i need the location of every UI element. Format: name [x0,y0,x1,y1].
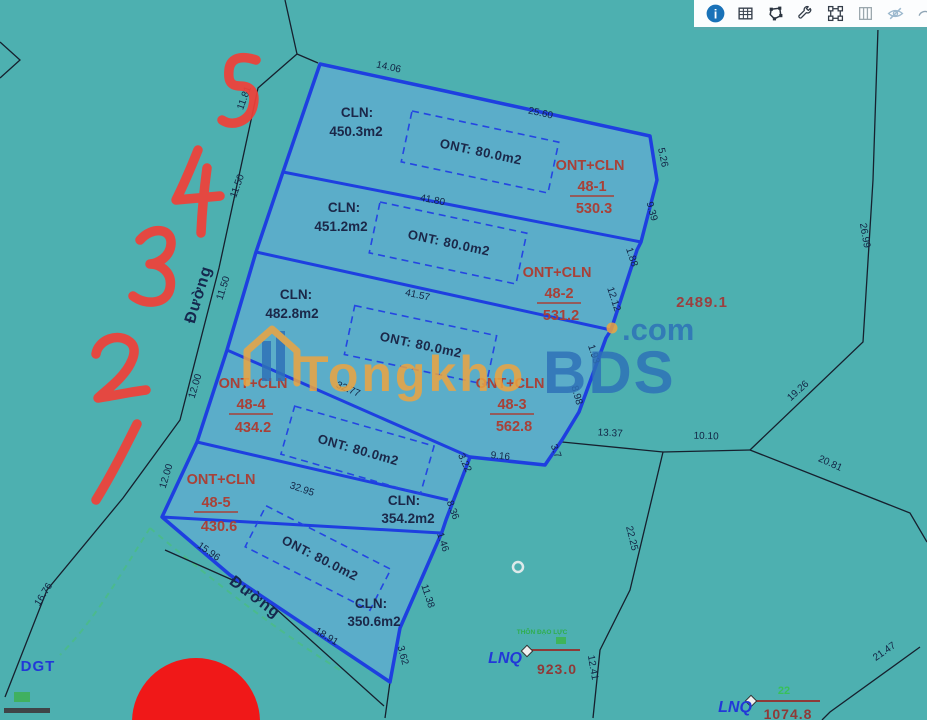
info-button[interactable]: i [700,1,730,27]
parcel5-type: ONT+CLN [187,472,256,488]
svg-text:i: i [713,6,717,21]
polygon-select-icon [767,5,784,22]
parcel5-code: 48-5 [201,495,230,511]
lnq-1-value: 923.0 [537,661,577,677]
parcel5-total: 430.6 [201,519,237,535]
transform-icon [827,5,844,22]
dim-13-37: 13.37 [597,427,623,439]
green-area-symbol [14,692,30,702]
parcel2-cln-area: 451.2m2 [314,219,367,234]
parcel3-cln-area: 482.8m2 [265,306,318,321]
map-toolbar: i [694,0,927,30]
wrench-button[interactable] [790,1,820,27]
lnq-2-value: 1074.8 [764,706,813,720]
table-icon [737,5,754,22]
parcel1-cln: CLN: [341,105,373,120]
parcel4-code: 48-4 [236,397,265,413]
area-2489-1: 2489.1 [676,294,728,311]
columns-button[interactable] [850,1,880,27]
scale-bar [4,708,50,713]
parcel5-cln: CLN: [355,596,387,611]
parcel3-cln: CLN: [280,287,312,302]
wrench-icon [797,5,814,22]
more-button[interactable] [910,1,927,27]
lnq-1-place: THÔN ĐẠO LỰC [517,627,568,636]
watermark-dot [607,323,618,334]
hide-layer-button[interactable] [880,1,910,27]
parcel3-total: 562.8 [496,419,532,435]
parcel2-code: 48-2 [544,286,573,302]
watermark-suffix: .com [622,312,694,347]
parcel5-cln-area: 350.6m2 [347,614,400,629]
lnq-2-code: 22 [778,685,790,697]
map-viewer: 14.0625.605.269.391.8812.121.938.9811.81… [0,0,927,720]
cadastral-map[interactable]: 14.0625.605.269.391.8812.121.938.9811.81… [0,0,927,720]
dim-9-16: 9.16 [490,450,511,463]
hide-layer-icon [887,5,904,22]
lnq-1-green-symbol [556,637,566,644]
parcel1-code: 48-1 [577,179,606,195]
lnq-1-label: LNQ [488,650,522,667]
parcel4-cln: CLN: [388,493,420,508]
parcel1-total: 530.3 [576,201,612,217]
dgt-label: DGT [21,658,56,675]
table-button[interactable] [730,1,760,27]
parcel4-cln-area: 354.2m2 [381,511,434,526]
watermark-text-secondary: BDS [543,339,676,406]
parcel1-cln-area: 450.3m2 [329,124,382,139]
dim-10-10: 10.10 [693,431,719,443]
info-icon: i [706,4,725,23]
parcel2-type: ONT+CLN [523,265,592,281]
parcel1-type: ONT+CLN [556,158,625,174]
parcel2-total: 531.2 [543,308,579,324]
parcel2-cln: CLN: [328,200,360,215]
lnq-2-label: LNQ [718,699,752,716]
columns-icon [857,5,874,22]
watermark-text-primary: Tongkho [298,346,526,402]
parcel4-total: 434.2 [235,420,271,436]
more-icon [917,5,927,22]
transform-button[interactable] [820,1,850,27]
polygon-select-button[interactable] [760,1,790,27]
